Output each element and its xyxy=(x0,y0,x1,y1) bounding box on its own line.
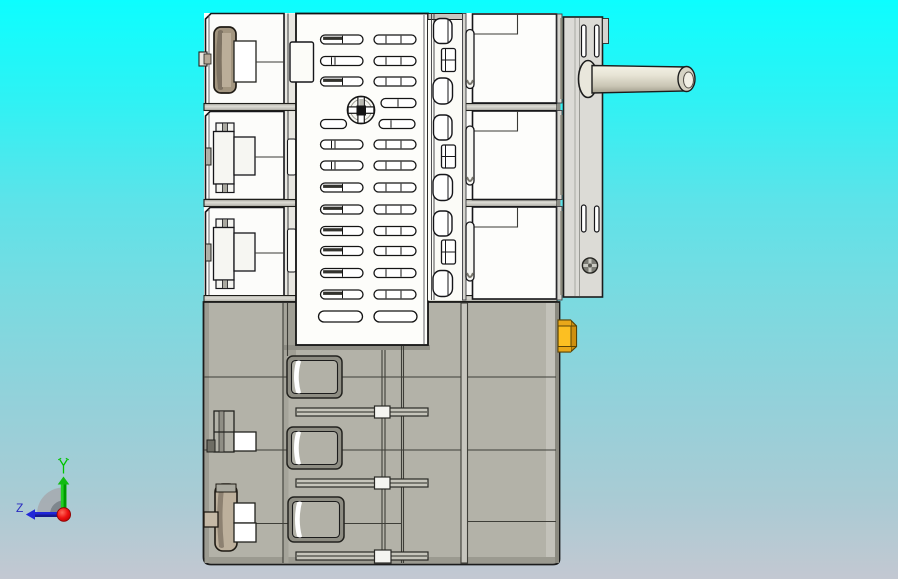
svg-text:Z: Z xyxy=(16,501,23,515)
